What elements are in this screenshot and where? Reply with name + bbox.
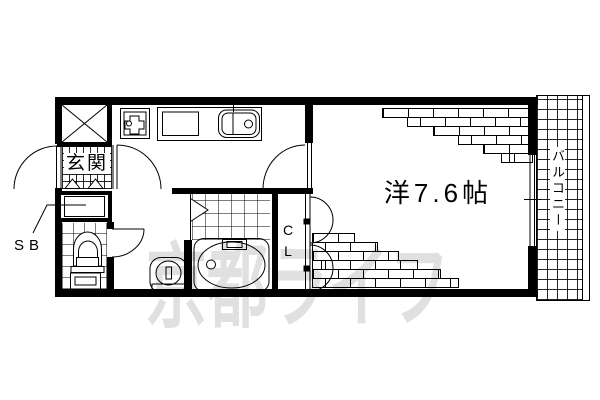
shoe-box-leader-line: [33, 205, 86, 233]
balcony-window: [524, 155, 541, 246]
shoe-box-detail: [33, 197, 105, 234]
entrance-dk-door: [113, 145, 161, 189]
closet-label: CL: [281, 222, 295, 264]
toilet-icon: [71, 232, 105, 289]
shoe-box-label: SB: [14, 238, 44, 253]
washbasin-icon: [150, 258, 187, 293]
main-room-label: 洋7.6帖: [363, 180, 513, 206]
floor-plan: 玄関 SB CL 洋7.6帖 バルコニー 京都ライフ: [0, 0, 600, 400]
stove-icon: [121, 109, 150, 139]
bath-folding-door-icon: [191, 199, 209, 222]
bathtub-icon: [194, 239, 269, 292]
closet-doors: [304, 194, 333, 292]
dk-mainroom-door: [263, 143, 312, 189]
entrance-step-marks: [65, 179, 103, 189]
meter-box-x-icon: [62, 105, 107, 142]
kitchen-counter: [158, 108, 262, 141]
sink-icon: [219, 104, 260, 138]
entrance-door: [14, 146, 61, 189]
balcony-label: バルコニー: [550, 147, 565, 231]
entrance-label: 玄関: [64, 153, 110, 174]
toilet-door: [112, 229, 144, 257]
